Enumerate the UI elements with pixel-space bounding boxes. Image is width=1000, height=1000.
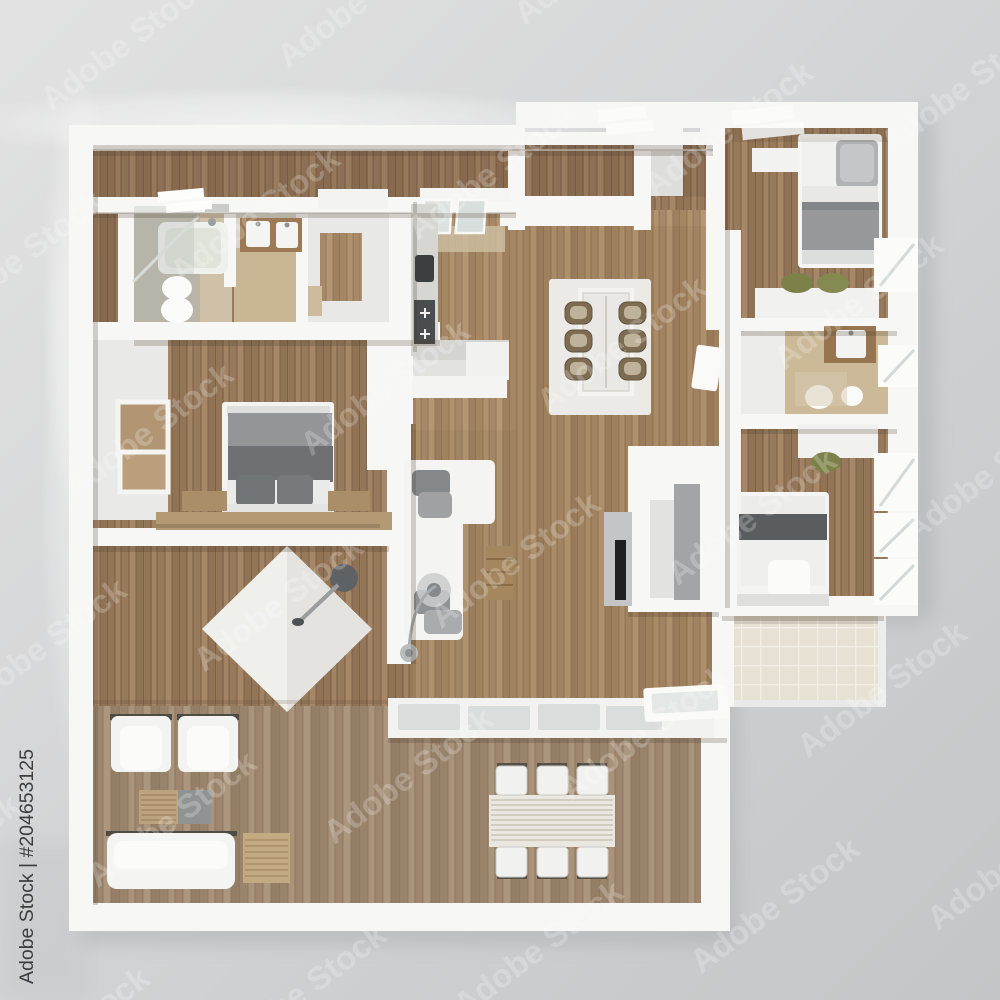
- svg-text:Adobe Stock | #204653125: Adobe Stock | #204653125: [16, 749, 38, 984]
